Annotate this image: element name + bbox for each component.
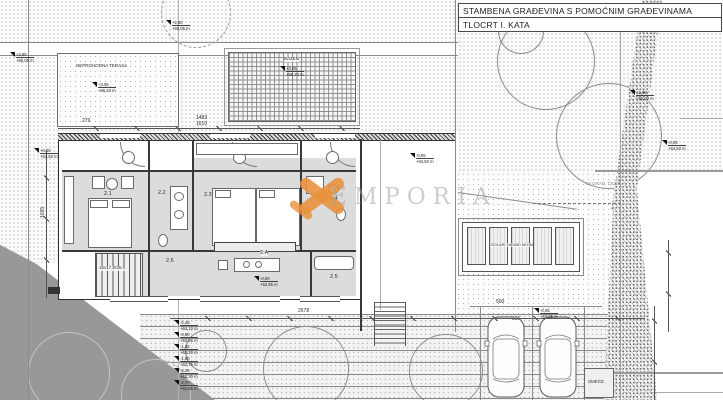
floor-plan-sheet: NEPROHODNA TERASA BAZEN [0, 0, 723, 400]
solar-panel [467, 227, 486, 265]
sink [255, 261, 262, 268]
armchair [92, 176, 105, 189]
elevation-marker: -2,70+61,85 m [174, 380, 198, 391]
bathtub [314, 256, 354, 270]
elevation-marker: +2,80+66,00 m [630, 90, 654, 101]
wall [192, 140, 194, 250]
room-label: 2.5 [330, 274, 338, 280]
pillow [90, 200, 108, 208]
elevation-marker: -0,90+63,65 m [174, 332, 198, 343]
dim-text: 2678 [298, 308, 309, 314]
wall [360, 139, 362, 331]
elevation-marker: -1,35+63,20 m [174, 344, 198, 355]
contour-line [595, 170, 723, 172]
elevation-marker: -0,05+63,95 m [534, 308, 558, 319]
room-label: 2.3 [204, 192, 212, 198]
solar-panel [533, 227, 552, 265]
room-label: 2.6 [166, 258, 174, 264]
column-symbol [326, 151, 339, 164]
wall [310, 252, 312, 296]
kitchen-counter [214, 242, 296, 252]
watermark-text: EMPORIA [330, 184, 497, 210]
outdoor-steps [374, 302, 406, 346]
dim-text: 1610 [196, 121, 207, 127]
solar-panel [555, 227, 574, 265]
title-block: STAMBENA GRAĐEVINA S POMOĆNIM GRAĐEVINAM… [458, 3, 722, 32]
glass-door [110, 296, 168, 302]
pool-label: BAZEN [284, 57, 299, 62]
elevation-marker: +0,00+64,55 m [34, 148, 58, 159]
dim-text: 1035 [40, 207, 46, 218]
elevation-marker: +2,80+66,05 m [166, 20, 190, 31]
room-label: 2.A [260, 250, 268, 256]
armchair [121, 176, 134, 189]
contour-line [680, 118, 723, 119]
terrace-edge [380, 140, 381, 310]
parking-edge [470, 306, 602, 307]
contour-line [606, 372, 723, 374]
room-label: 2.1 [104, 191, 112, 197]
wall [148, 140, 150, 298]
elevation-marker: +3,05+66,20 m [92, 82, 116, 93]
sink [174, 192, 184, 201]
sink [243, 261, 250, 268]
dim-chain-bottom [170, 316, 645, 321]
dim-chain-top [58, 126, 360, 131]
car-top-view [536, 315, 580, 399]
table [106, 178, 118, 190]
grid-line [620, 28, 621, 400]
window-opening [315, 134, 355, 138]
tree-outline [409, 334, 483, 400]
pillow [259, 190, 275, 198]
drawing-title: STAMBENA GRAĐEVINA S POMOĆNIM GRAĐEVINAM… [459, 4, 721, 18]
wardrobe [64, 176, 74, 244]
window-opening [210, 134, 250, 138]
staircase [95, 253, 143, 297]
terrace-label: NEPROHODNA TERASA [76, 64, 127, 69]
pillow [215, 190, 231, 198]
elevation-marker: +3,05+66,20 m [280, 66, 304, 77]
solar-label: SOLARI 150X80 5KOM [491, 243, 533, 247]
car-top-view [484, 315, 528, 399]
closet-row [196, 143, 298, 155]
dashed-line [533, 203, 621, 204]
dim-chain-left [44, 150, 49, 298]
dim-chain-right [652, 306, 657, 400]
waste-label: SMEĆE [588, 380, 604, 385]
elevation-marker: -0,05+64,50 m [410, 153, 434, 164]
elevation-marker: +2,80+66,05 m [10, 52, 34, 63]
column-symbol [122, 151, 135, 164]
elevation-marker: -1,80+62,75 m [174, 356, 198, 367]
glass-door [200, 296, 280, 302]
dim-text: 500 [496, 299, 504, 305]
sink [174, 210, 184, 219]
window-opening [100, 134, 140, 138]
dim-text: 279 [82, 118, 90, 124]
elevation-marker: -0,60+63,95 m [254, 276, 278, 287]
stairs-label: 16x17,8/26,0 [99, 266, 125, 271]
pillow [112, 200, 130, 208]
appliance [218, 260, 228, 270]
elevation-marker: -0,05+64,50 m [662, 140, 686, 151]
grid-line [455, 0, 456, 332]
room-label: 2.2 [158, 190, 166, 196]
elevation-marker: -0,45+64,10 m [174, 320, 198, 331]
toilet [158, 234, 168, 247]
shaft [48, 287, 60, 294]
plot-label: 18 GRAĐ. ČEST. [586, 182, 621, 187]
elevation-marker: -2,25+62,30 m [174, 368, 198, 379]
drawing-subtitle: TLOCRT I. KATA [459, 18, 721, 31]
dim-chain-right2 [666, 240, 671, 332]
contour-line [650, 392, 723, 393]
glass-door [300, 296, 340, 302]
